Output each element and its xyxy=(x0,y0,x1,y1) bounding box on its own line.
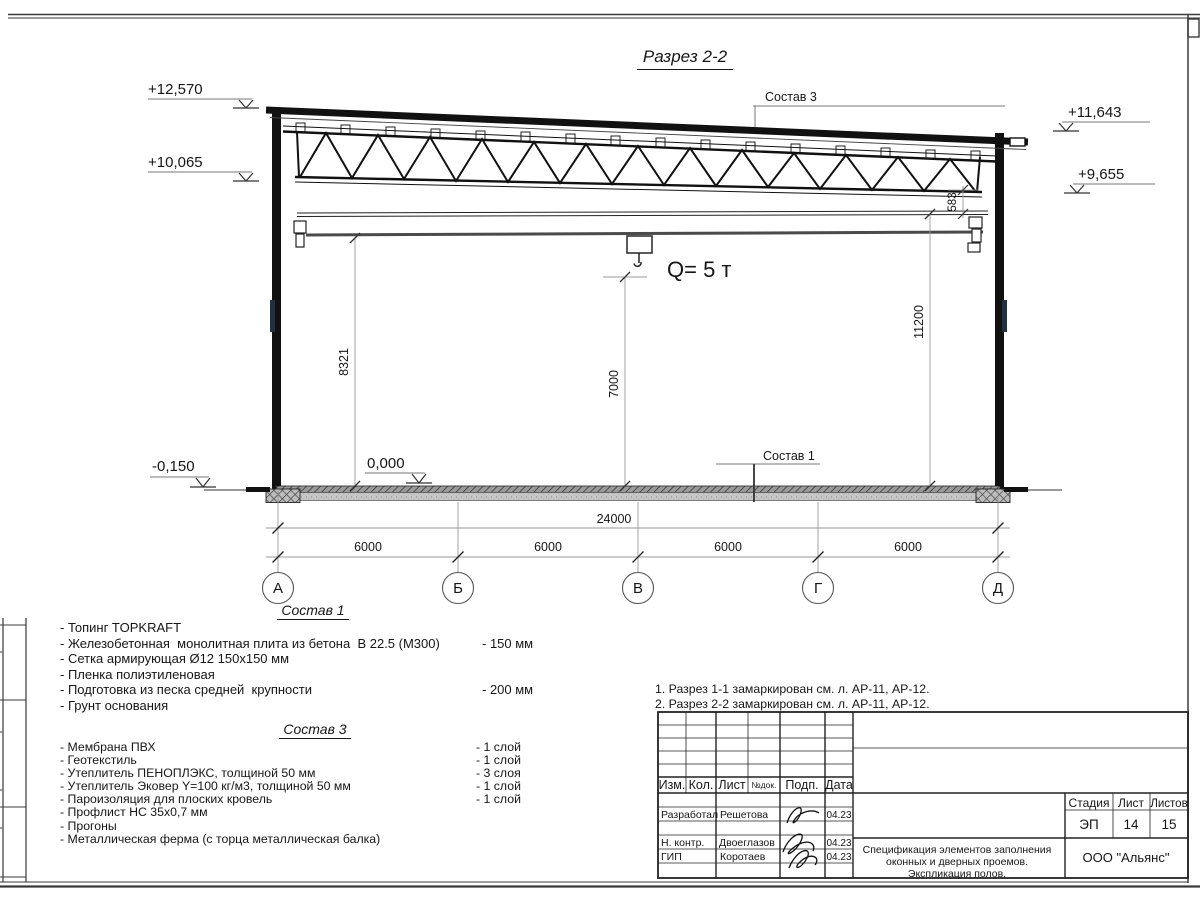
elevation-left-mid: +10,065 xyxy=(148,154,259,181)
material-item: - Геотекстиль- 1 слой xyxy=(60,753,620,766)
callout-sostav3: Состав 3 xyxy=(765,90,817,104)
svg-text:+10,065: +10,065 xyxy=(148,154,203,171)
titleblock-signature-rows: Разработал Решетова 04.23 Н. контр. Двое… xyxy=(661,809,852,863)
elevation-ground: -0,150 xyxy=(150,458,216,487)
elevation-right-mid: +9,655 xyxy=(1064,166,1155,193)
dim-bay-2: 6000 xyxy=(534,540,562,554)
svg-text:Листов: Листов xyxy=(1150,798,1187,810)
signatures xyxy=(783,808,819,868)
dim-bay-3: 6000 xyxy=(714,540,742,554)
sheets-total: 15 xyxy=(1161,817,1176,832)
dim-bay-1: 6000 xyxy=(354,540,382,554)
note-line: 1. Разрез 1-1 замаркирован см. л. АР-11,… xyxy=(655,682,930,697)
material-item: - Прогоны xyxy=(60,819,620,832)
dim-total: 24000 xyxy=(597,512,632,526)
callout-sostav1: Состав 1 xyxy=(763,449,815,463)
elevation-right-top: +11,643 xyxy=(1053,104,1150,131)
svg-text:+9,655: +9,655 xyxy=(1078,166,1124,183)
corner-stamp-box xyxy=(1188,19,1199,37)
grid-axis-b: Б xyxy=(453,580,463,597)
role-gip: ГИП xyxy=(661,851,682,863)
bracket-left xyxy=(294,221,306,233)
elevation-floor-zero: 0,000 xyxy=(365,455,432,483)
svg-text:Спецификация элементов заполне: Спецификация элементов заполнения xyxy=(863,844,1052,856)
stage-value: ЭП xyxy=(1079,817,1098,832)
grid-axis-g: Г xyxy=(814,580,822,597)
truss-diagonals xyxy=(300,133,976,192)
svg-text:Лист: Лист xyxy=(718,778,745,792)
sheet-number: 14 xyxy=(1123,817,1139,832)
sostav1-heading: Состав 1 xyxy=(228,602,398,620)
svg-text:0,000: 0,000 xyxy=(367,455,405,472)
grid-letters: А Б В Г Д xyxy=(273,580,1003,597)
material-item: - Утеплитель ПЕНОПЛЭКС, толщиной 50 мм- … xyxy=(60,766,620,779)
material-item: - Пароизоляция для плоских кровель- 1 сл… xyxy=(60,792,620,805)
material-item: - Топинг TOPKRAFT xyxy=(60,620,620,636)
svg-text:11200: 11200 xyxy=(912,305,926,339)
material-item: - Утеплитель Эковер Y=100 кг/м3, толщино… xyxy=(60,779,620,792)
svg-text:Стадия: Стадия xyxy=(1069,796,1110,810)
svg-text:Лист: Лист xyxy=(1118,796,1145,810)
svg-text:583: 583 xyxy=(947,192,959,211)
role-ncontrol: Н. контр. xyxy=(661,837,704,849)
dim-11200: 11200 xyxy=(912,209,935,491)
name-developer: Решетова xyxy=(720,809,768,821)
drawing-sheet: Q= 5 т +12,570 +10,065 xyxy=(0,0,1200,900)
sostav3-heading: Состав 3 xyxy=(230,721,400,739)
name-ncontrol: Двоеглазов xyxy=(719,837,775,849)
svg-text:Дата: Дата xyxy=(825,778,853,792)
section-title: Разрез 2-2 xyxy=(575,47,795,70)
name-gip: Коротаев xyxy=(720,851,766,863)
bracket-right xyxy=(969,217,982,228)
floor xyxy=(204,486,1062,503)
material-item: - Грунт основания xyxy=(60,698,620,714)
material-item: - Мембрана ПВХ- 1 слой xyxy=(60,740,620,753)
material-item: - Сетка армирующая Ø12 150х150 мм xyxy=(60,651,620,667)
foundation-left xyxy=(266,489,300,503)
grid-axis-d: Д xyxy=(993,580,1003,597)
svg-text:оконных и дверных проемов.: оконных и дверных проемов. xyxy=(886,856,1028,868)
material-item: - Металлическая ферма (с торца металличе… xyxy=(60,832,620,845)
elevation-left-top: +12,570 xyxy=(148,81,259,108)
column-left xyxy=(272,108,281,490)
date-ncontrol: 04.23 xyxy=(826,838,851,849)
svg-text:+11,643: +11,643 xyxy=(1068,104,1122,121)
date-gip: 04.23 xyxy=(826,852,851,863)
dim-7000: 7000 xyxy=(603,272,647,491)
signature-gip xyxy=(789,851,817,868)
role-developer: Разработал xyxy=(661,809,718,821)
building-section: Q= 5 т xyxy=(204,108,1062,503)
svg-text:№док.: №док. xyxy=(752,780,777,790)
grid-axis-a: А xyxy=(273,580,283,597)
floor-slab xyxy=(276,486,1000,493)
svg-text:Изм.: Изм. xyxy=(659,778,686,792)
dim-bay-4: 6000 xyxy=(894,540,922,554)
floor-base xyxy=(276,493,1000,501)
signature-ncontrol xyxy=(783,834,814,854)
material-item: - Подготовка из песка средней крупности-… xyxy=(60,682,620,698)
dim-8321: 8321 xyxy=(337,233,360,491)
grid-axis-v: В xyxy=(633,580,643,597)
title-block: Изм. Кол. Лист №док. Подп. Дата Разработ… xyxy=(658,712,1188,880)
sostav1-list: - Топинг TOPKRAFT - Железобетонная монол… xyxy=(60,620,620,714)
panel-joint-right xyxy=(1002,300,1007,332)
material-item: - Железобетонная монолитная плита из бет… xyxy=(60,636,620,652)
panel-joint-left xyxy=(270,300,275,332)
svg-text:Подп.: Подп. xyxy=(785,778,818,792)
crane-capacity-label: Q= 5 т xyxy=(667,257,732,282)
material-item: - Профлист НС 35х0,7 мм xyxy=(60,805,620,818)
eaves-end-detail xyxy=(1010,138,1025,146)
bottom-dimensions: 24000 6000 6000 6000 6000 А Б В Г Д xyxy=(263,491,1014,604)
vertical-dimensions: 8321 7000 11200 583 xyxy=(337,185,978,491)
titleblock-header-row: Изм. Кол. Лист №док. Подп. Дата xyxy=(659,778,853,792)
crane: Q= 5 т xyxy=(294,211,988,282)
svg-text:Кол.: Кол. xyxy=(689,778,714,792)
svg-text:+12,570: +12,570 xyxy=(148,81,203,98)
company-name: ООО "Альянс" xyxy=(1083,850,1170,865)
note-line: 2. Разрез 2-2 замаркирован см. л. АР-11,… xyxy=(655,697,930,712)
svg-text:7000: 7000 xyxy=(607,370,621,398)
svg-text:Экспликация полов.: Экспликация полов. xyxy=(908,868,1006,880)
material-item: - Пленка полиэтиленовая xyxy=(60,667,620,683)
crane-hook xyxy=(634,262,641,266)
svg-text:8321: 8321 xyxy=(337,348,351,376)
doc-title: Спецификация элементов заполнения оконны… xyxy=(863,844,1052,880)
svg-text:-0,150: -0,150 xyxy=(152,458,195,475)
titleblock-stage-cells: Стадия Лист Листов ЭП 14 15 xyxy=(1069,796,1188,832)
sostav3-list: - Мембрана ПВХ- 1 слой - Геотекстиль- 1 … xyxy=(60,740,620,845)
date-developer: 04.23 xyxy=(826,810,851,821)
drawing-notes: 1. Разрез 1-1 замаркирован см. л. АР-11,… xyxy=(655,682,930,711)
dim-583: 583 xyxy=(947,185,978,219)
hoist-trolley xyxy=(627,236,652,253)
